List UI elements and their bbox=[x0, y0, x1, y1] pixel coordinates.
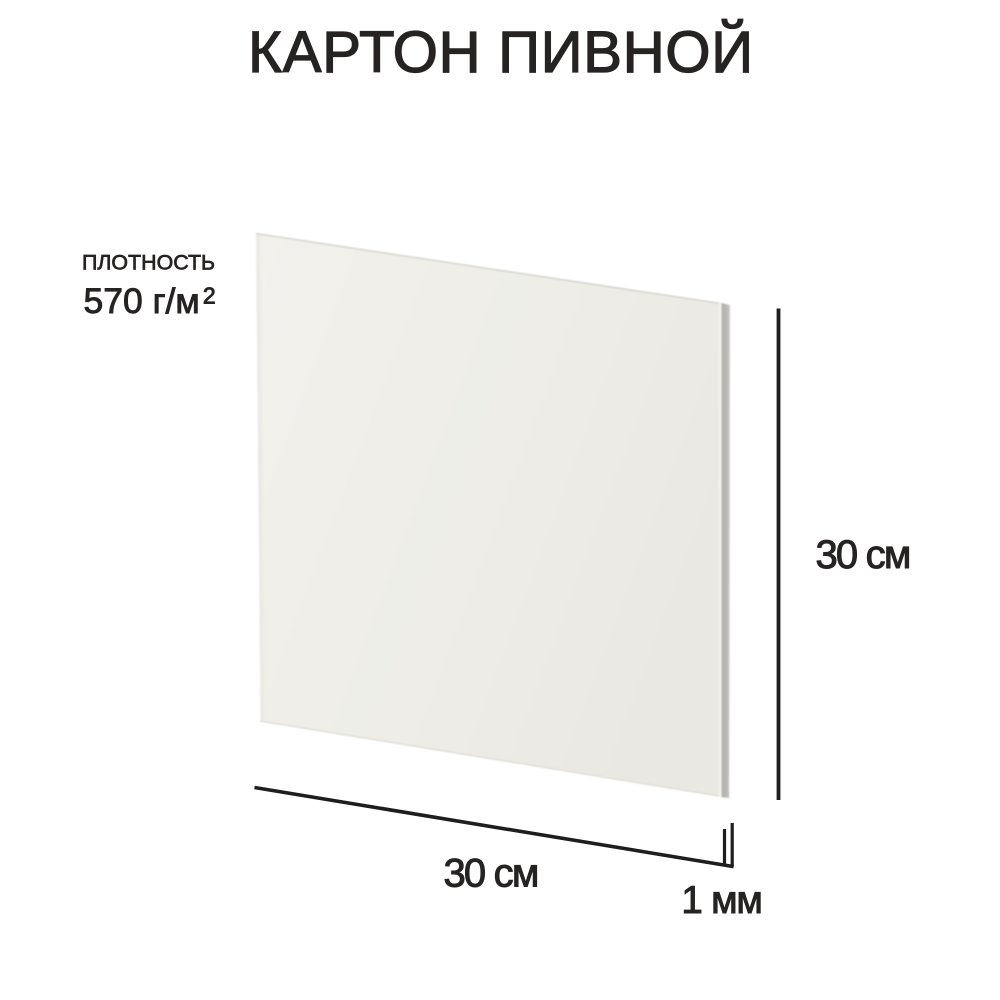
svg-text:30 см: 30 см bbox=[443, 852, 537, 896]
svg-text:ПЛОТНОСТЬ: ПЛОТНОСТЬ bbox=[82, 251, 215, 275]
svg-text:1 мм: 1 мм bbox=[681, 879, 761, 922]
svg-text:570 г/м2: 570 г/м2 bbox=[84, 281, 216, 321]
svg-text:КАРТОН ПИВНОЙ: КАРТОН ПИВНОЙ bbox=[248, 20, 754, 85]
svg-text:30 см: 30 см bbox=[815, 533, 909, 577]
